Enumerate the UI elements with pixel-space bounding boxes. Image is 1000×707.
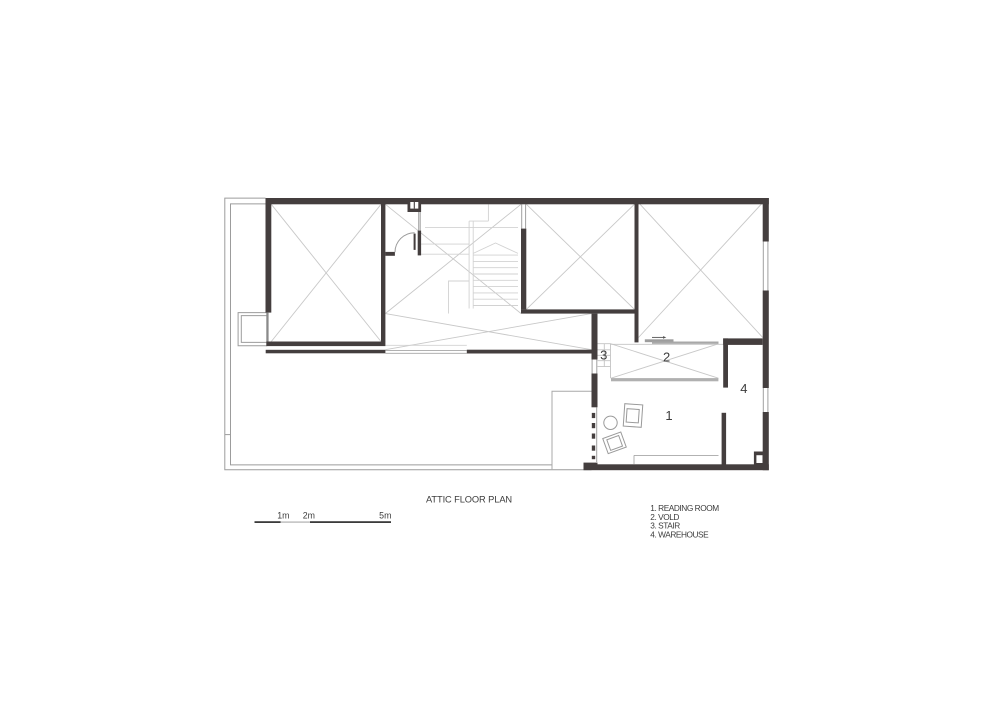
svg-text:5m: 5m: [379, 510, 391, 520]
svg-text:1: 1: [665, 408, 672, 423]
svg-text:4. WAREHOUSE: 4. WAREHOUSE: [650, 529, 709, 539]
svg-text:ATTIC FLOOR PLAN: ATTIC FLOOR PLAN: [426, 494, 512, 504]
svg-text:2m: 2m: [303, 510, 315, 520]
svg-text:1m: 1m: [277, 510, 289, 520]
svg-text:2: 2: [663, 349, 670, 364]
svg-text:4: 4: [740, 381, 747, 396]
svg-text:3: 3: [600, 348, 607, 363]
